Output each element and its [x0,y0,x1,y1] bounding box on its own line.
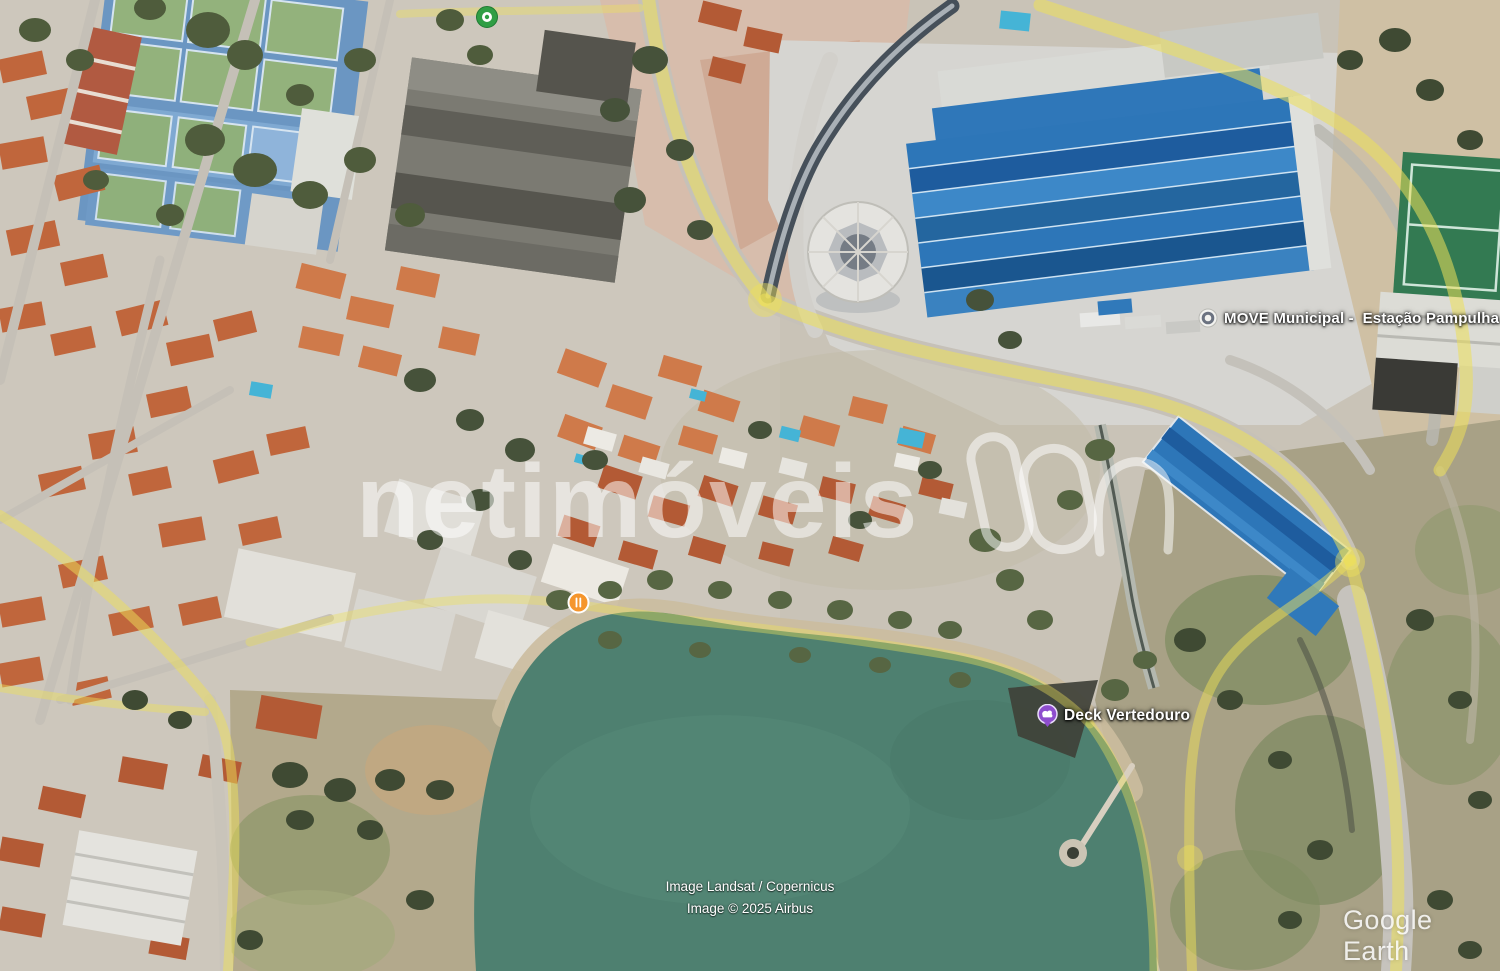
deck-poi-label[interactable]: Deck Vertedouro [1037,704,1190,728]
satellite-map[interactable] [0,0,1500,971]
station-poi-text: MOVE Municipal - Estação Pampulha [1224,310,1499,327]
deck-poi-text: Deck Vertedouro [1064,707,1190,725]
station-poi-label[interactable]: MOVE Municipal - Estação Pampulha [1198,308,1499,328]
google-earth-viewport[interactable]: netimóveis MOVE Municipal - Estação Pamp… [0,0,1500,971]
park-poi-marker[interactable] [476,6,498,33]
restaurant-poi-marker[interactable] [567,591,590,619]
green-dot-icon [476,6,498,28]
restaurant-icon [567,591,590,614]
rotunda-building [808,202,908,313]
photo-spot-icon [1037,704,1058,728]
transit-station-icon [1198,308,1218,328]
